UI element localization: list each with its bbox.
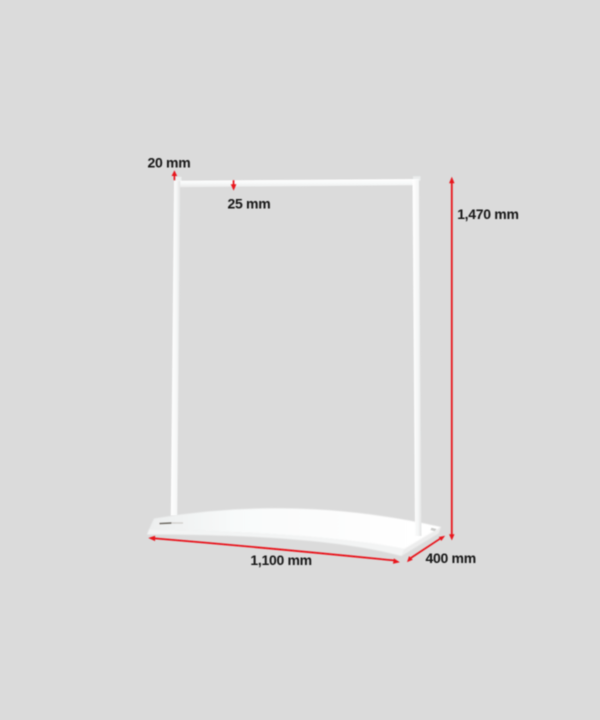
- svg-text:25 mm: 25 mm: [228, 195, 271, 211]
- svg-text:400 mm: 400 mm: [426, 550, 476, 566]
- svg-text:1,100 mm: 1,100 mm: [250, 552, 311, 568]
- svg-text:20 mm: 20 mm: [148, 154, 191, 170]
- svg-text:1,470 mm: 1,470 mm: [457, 206, 518, 222]
